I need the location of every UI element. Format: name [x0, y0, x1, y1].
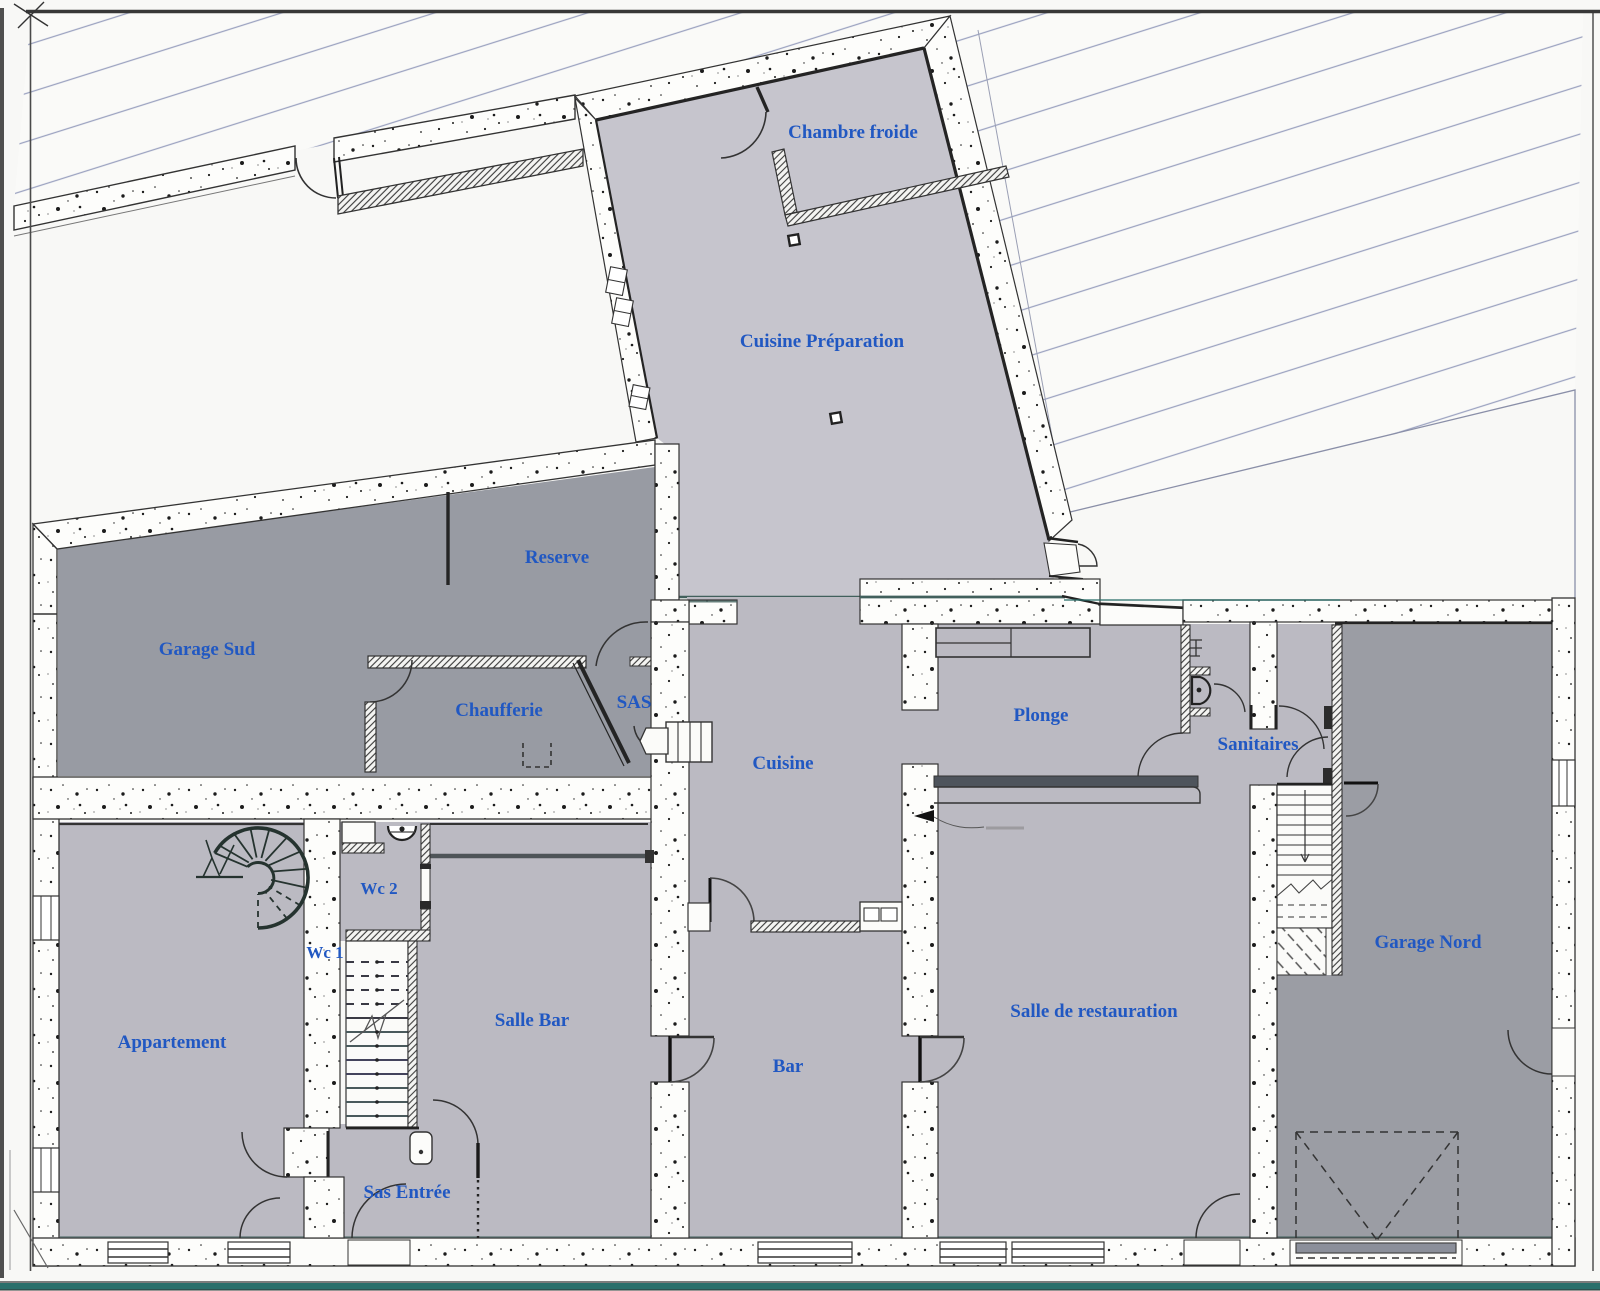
svg-text:Garage Sud: Garage Sud: [159, 639, 256, 660]
svg-text:Plonge: Plonge: [1014, 705, 1069, 726]
svg-text:Sas Entrée: Sas Entrée: [363, 1182, 450, 1203]
svg-text:Wc 1: Wc 1: [306, 943, 343, 962]
svg-text:Salle Bar: Salle Bar: [495, 1010, 570, 1031]
svg-text:Chaufferie: Chaufferie: [455, 700, 543, 721]
svg-text:Cuisine Préparation: Cuisine Préparation: [740, 331, 905, 352]
svg-text:Wc 2: Wc 2: [360, 879, 397, 898]
svg-text:Bar: Bar: [773, 1056, 804, 1077]
svg-text:Salle de restauration: Salle de restauration: [1010, 1001, 1178, 1022]
svg-text:SAS: SAS: [617, 692, 652, 713]
svg-text:Chambre froide: Chambre froide: [788, 122, 918, 143]
svg-text:Garage Nord: Garage Nord: [1374, 932, 1482, 953]
svg-text:Reserve: Reserve: [525, 547, 589, 568]
svg-text:Appartement: Appartement: [118, 1032, 227, 1053]
svg-text:Cuisine: Cuisine: [752, 753, 813, 774]
svg-text:Sanitaires: Sanitaires: [1218, 734, 1299, 755]
